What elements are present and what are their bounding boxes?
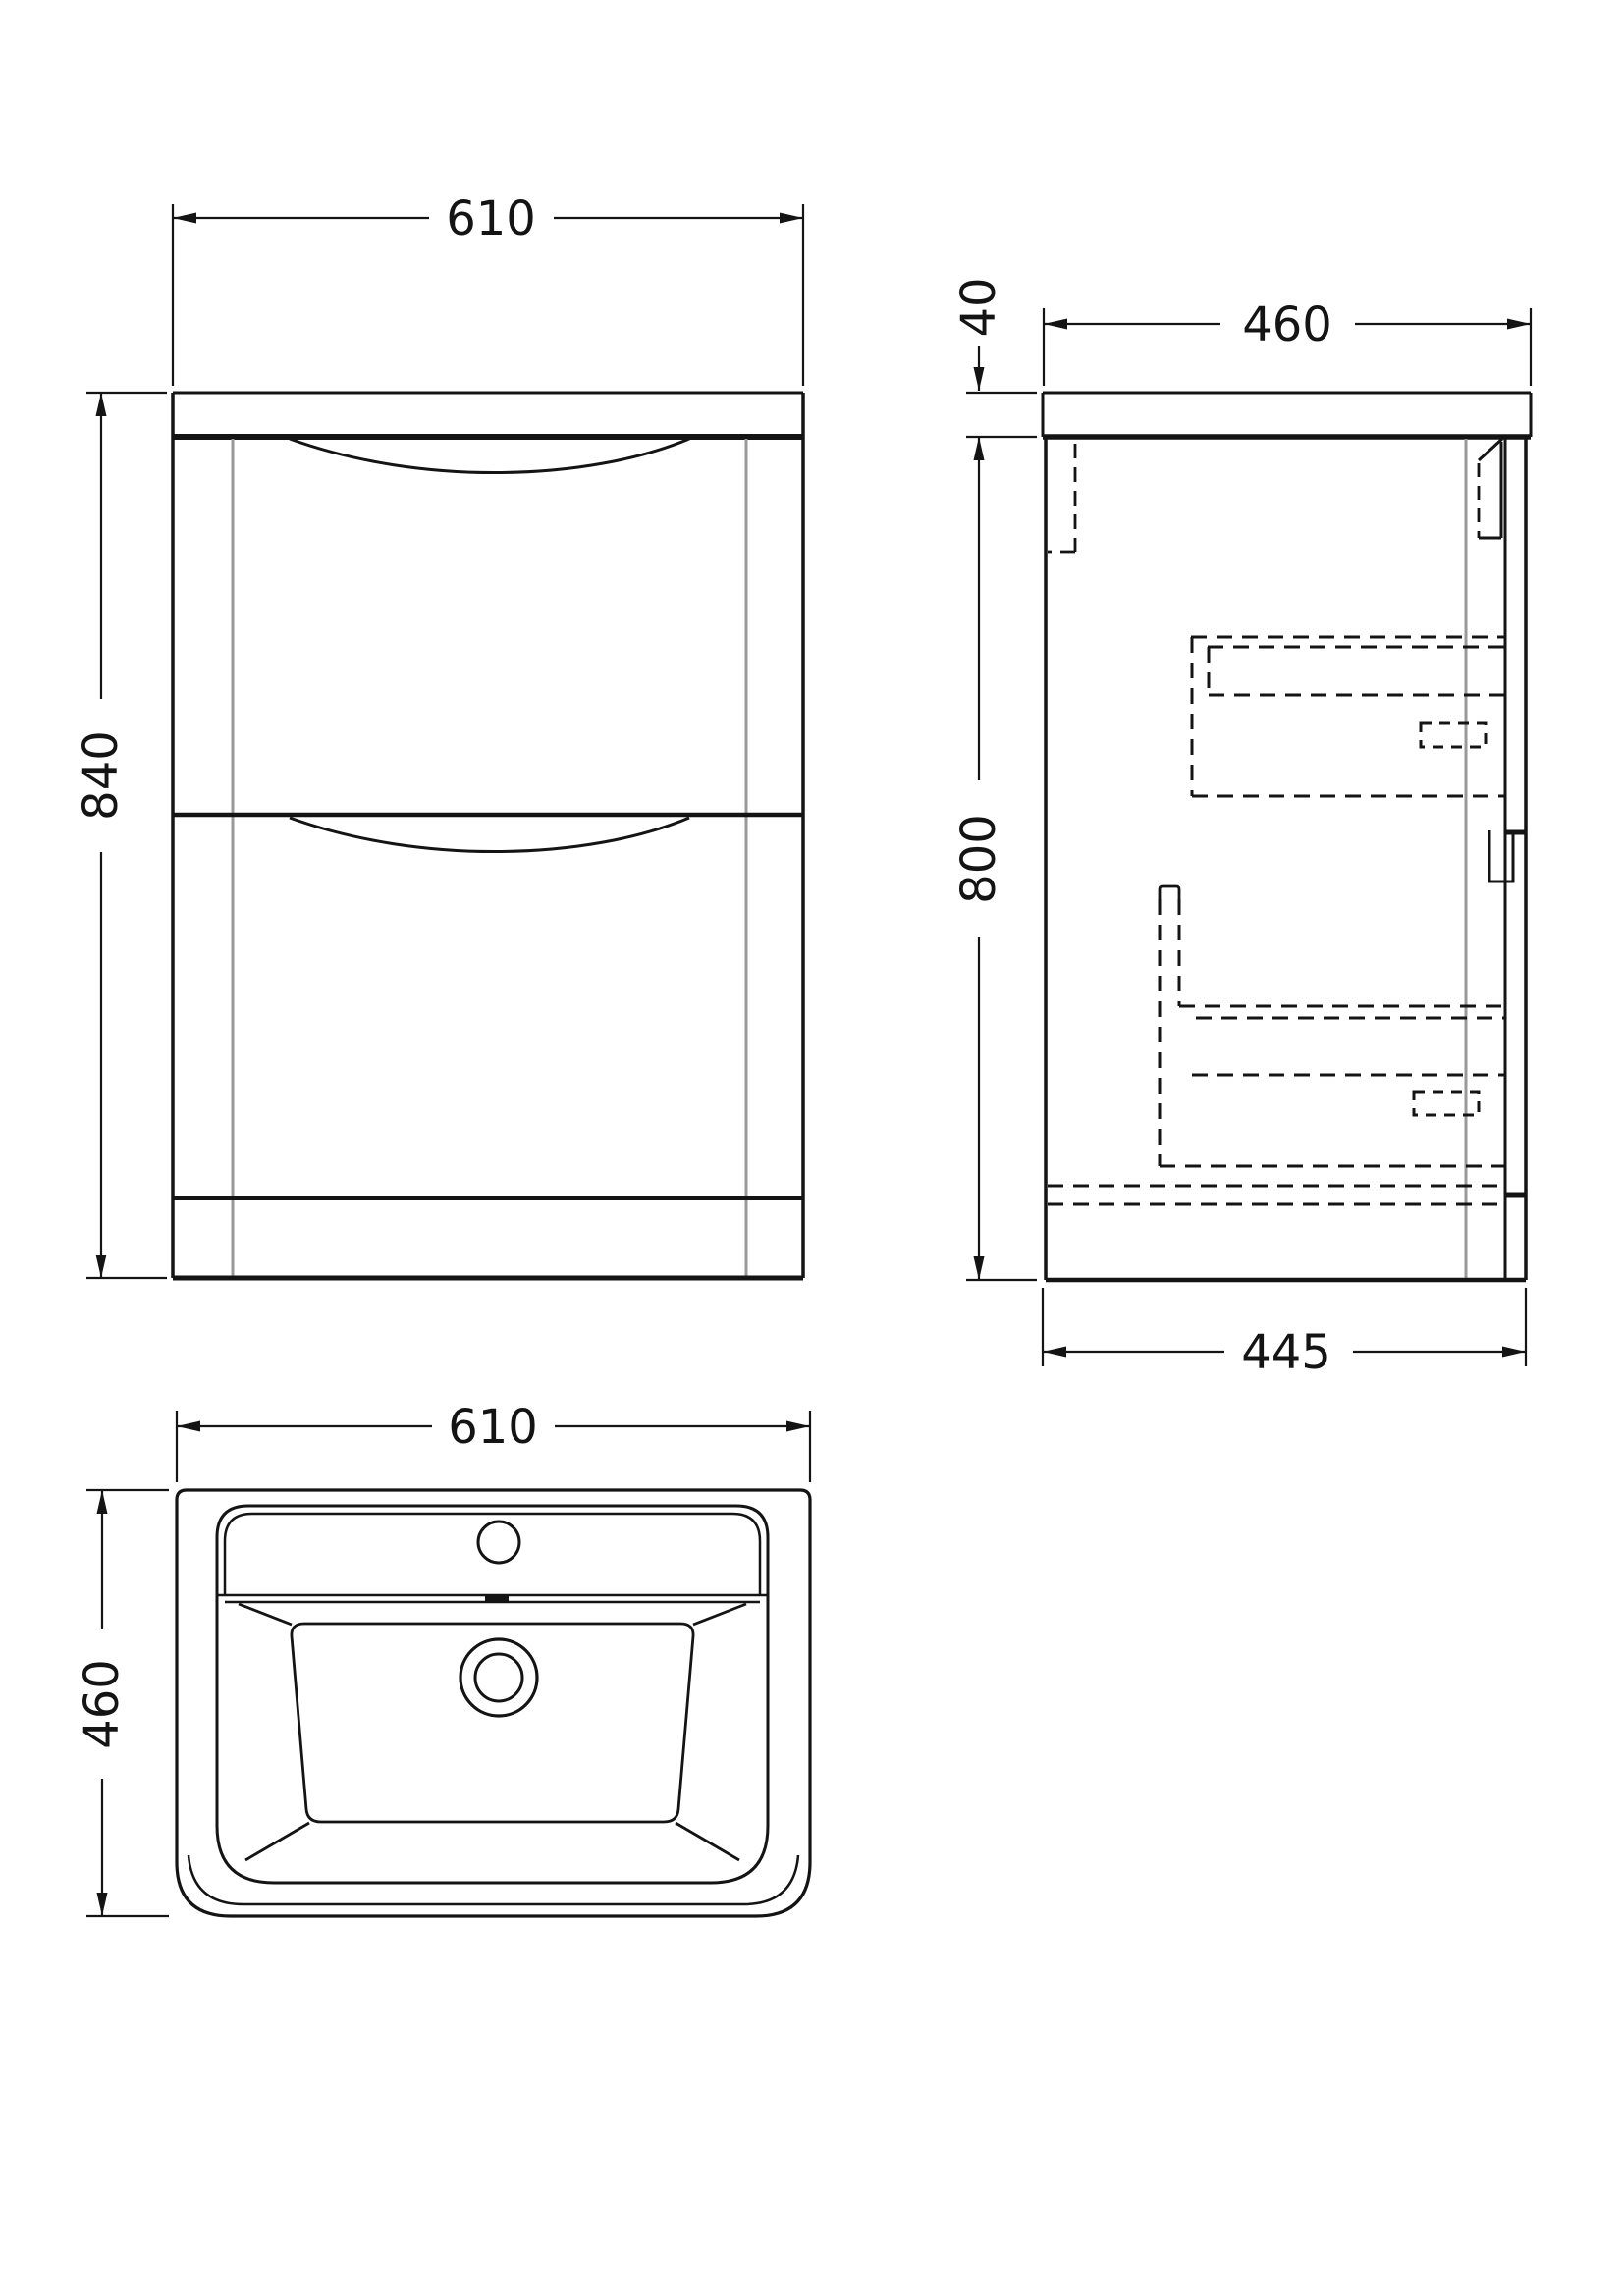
vanity-technical-drawing: 610 840 460 [0,0,1623,2296]
drawing-canvas: 610 840 460 [0,0,1623,2296]
side-top-thickness-label: 40 [951,277,1006,337]
front-height-label: 840 [74,730,129,821]
side-height-label: 800 [951,814,1006,904]
front-width-label: 610 [446,191,536,246]
overflow-slot [485,1594,509,1601]
basin-depth-label: 460 [75,1659,130,1749]
basin-width-label: 610 [448,1400,538,1455]
side-base-depth-label: 445 [1241,1325,1331,1380]
paper-background [0,0,1623,2296]
side-depth-label: 460 [1242,297,1332,352]
